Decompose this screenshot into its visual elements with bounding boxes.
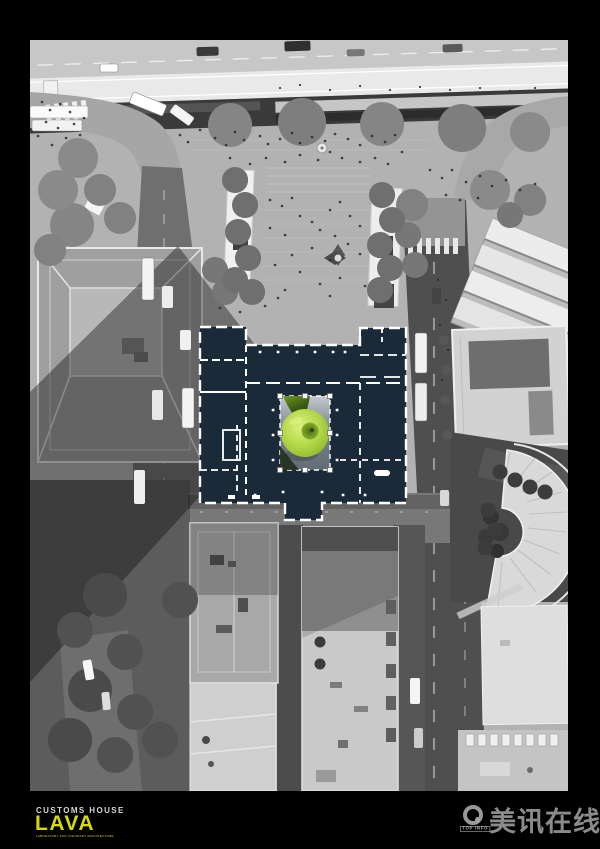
courtyard-building-right: [452, 326, 568, 448]
watermark-site-name: 美讯在线: [489, 800, 600, 839]
aerial-photo: [30, 40, 568, 791]
watermark-ring-icon: [463, 805, 483, 825]
poster: CUSTOMS HOUSE LAVA LABORATORY FOR VISION…: [0, 0, 600, 849]
apple-dimple: [302, 423, 319, 440]
lava-tagline: LABORATORY FOR VISIONARY ARCHITECTURE: [36, 835, 114, 838]
bottom-building-b: [302, 527, 398, 791]
lava-logo: LAVA: [35, 813, 95, 834]
watermark-top-info: TOP INFO: [460, 826, 490, 832]
fan-building: [450, 432, 568, 621]
courtyard-selection[interactable]: [278, 394, 333, 473]
alley: [277, 525, 303, 791]
watermark-dot-icon: [475, 817, 480, 822]
